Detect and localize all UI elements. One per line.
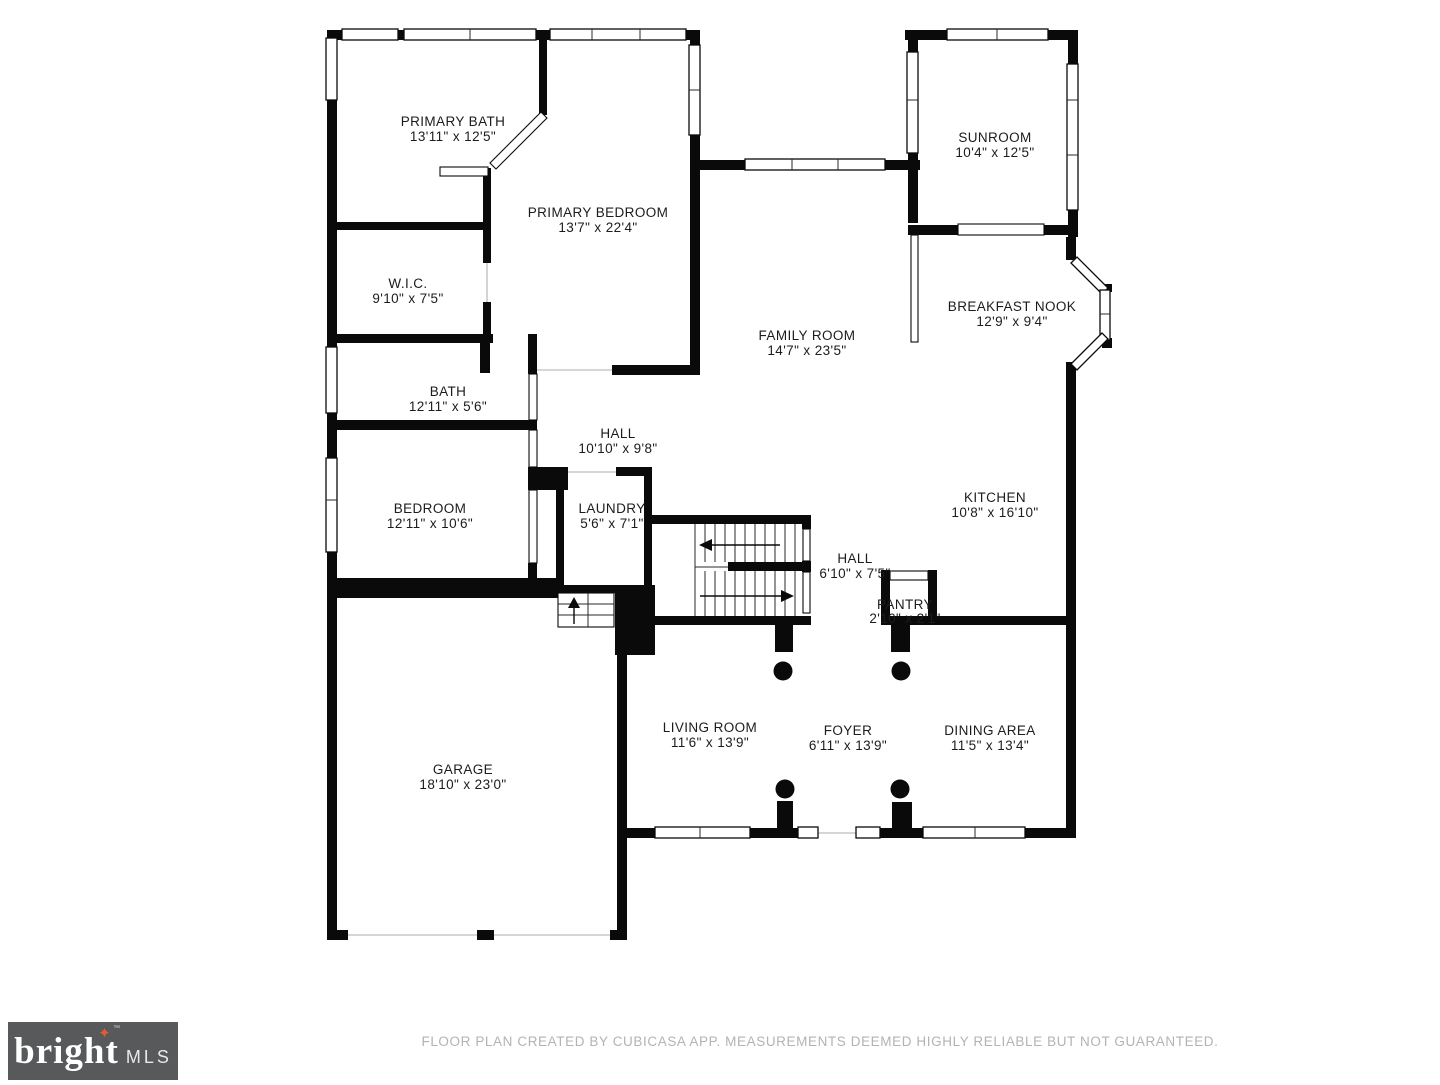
garage-steps	[558, 593, 614, 627]
svg-text:13'7" x 22'4": 13'7" x 22'4"	[558, 220, 637, 235]
svg-text:11'5" x 13'4": 11'5" x 13'4"	[951, 738, 1029, 753]
svg-text:12'11" x 5'6": 12'11" x 5'6"	[409, 399, 487, 414]
svg-text:13'11" x 12'5": 13'11" x 12'5"	[410, 129, 496, 144]
brightmls-logo: bright✦™MLS	[8, 1022, 178, 1080]
svg-text:11'6" x 13'9": 11'6" x 13'9"	[671, 735, 749, 750]
room-label-living-room: LIVING ROOM 11'6" x 13'9"	[663, 720, 757, 750]
svg-text:FAMILY ROOM: FAMILY ROOM	[759, 328, 856, 343]
svg-text:BEDROOM: BEDROOM	[394, 501, 467, 516]
svg-text:PRIMARY BATH: PRIMARY BATH	[401, 114, 506, 129]
svg-text:DINING AREA: DINING AREA	[944, 723, 1035, 738]
column	[774, 662, 793, 681]
floor-plan: PRIMARY BATH 13'11" x 12'5" PRIMARY BEDR…	[0, 0, 1440, 1080]
column	[776, 780, 795, 799]
logo-suffix-text: MLS	[126, 1047, 172, 1067]
svg-text:PANTRY: PANTRY	[877, 597, 933, 612]
footer-disclaimer: FLOOR PLAN CREATED BY CUBICASA APP. MEAS…	[200, 1034, 1440, 1049]
svg-text:GARAGE: GARAGE	[433, 762, 493, 777]
svg-text:BREAKFAST NOOK: BREAKFAST NOOK	[948, 299, 1076, 314]
svg-text:10'10" x 9'8": 10'10" x 9'8"	[578, 441, 657, 456]
room-label-pantry: PANTRY 2'10" x 2'1"	[869, 597, 940, 626]
svg-text:W.I.C.: W.I.C.	[388, 276, 427, 291]
svg-text:5'6" x 7'1": 5'6" x 7'1"	[580, 516, 643, 531]
svg-text:12'11" x 10'6": 12'11" x 10'6"	[387, 516, 473, 531]
svg-text:KITCHEN: KITCHEN	[964, 490, 1026, 505]
svg-text:LAUNDRY: LAUNDRY	[578, 501, 645, 516]
room-label-bedroom: BEDROOM 12'11" x 10'6"	[387, 501, 473, 531]
brightmls-logo-inner: bright✦™MLS	[14, 1033, 172, 1070]
room-label-dining-area: DINING AREA 11'5" x 13'4"	[944, 723, 1035, 753]
svg-text:HALL: HALL	[600, 426, 635, 441]
svg-text:10'8" x 16'10": 10'8" x 16'10"	[951, 505, 1038, 520]
column	[892, 662, 911, 681]
room-label-kitchen: KITCHEN 10'8" x 16'10"	[951, 490, 1038, 520]
svg-text:LIVING ROOM: LIVING ROOM	[663, 720, 757, 735]
svg-text:18'10" x 23'0": 18'10" x 23'0"	[419, 777, 506, 792]
svg-text:9'10" x 7'5": 9'10" x 7'5"	[372, 291, 443, 306]
svg-text:10'4" x 12'5": 10'4" x 12'5"	[955, 145, 1034, 160]
svg-text:2'10" x 2'1": 2'10" x 2'1"	[869, 611, 940, 626]
svg-text:SUNROOM: SUNROOM	[958, 130, 1031, 145]
svg-text:FOYER: FOYER	[824, 723, 873, 738]
room-label-laundry: LAUNDRY 5'6" x 7'1"	[578, 501, 645, 531]
svg-text:BATH: BATH	[430, 384, 467, 399]
column	[891, 780, 910, 799]
svg-text:HALL: HALL	[837, 551, 872, 566]
svg-text:PRIMARY BEDROOM: PRIMARY BEDROOM	[528, 205, 669, 220]
room-label-family-room: FAMILY ROOM 14'7" x 23'5"	[759, 328, 856, 358]
room-label-sunroom: SUNROOM 10'4" x 12'5"	[955, 130, 1034, 160]
logo-trademark: ™	[113, 1025, 120, 1032]
svg-text:14'7" x 23'5": 14'7" x 23'5"	[767, 343, 846, 358]
svg-text:12'9" x 9'4": 12'9" x 9'4"	[976, 314, 1047, 329]
svg-text:6'11" x 13'9": 6'11" x 13'9"	[809, 738, 887, 753]
room-label-primary-bath: PRIMARY BATH 13'11" x 12'5"	[401, 114, 506, 144]
logo-star-icon: ✦	[98, 1026, 111, 1041]
svg-text:6'10" x 7'5": 6'10" x 7'5"	[819, 566, 890, 581]
